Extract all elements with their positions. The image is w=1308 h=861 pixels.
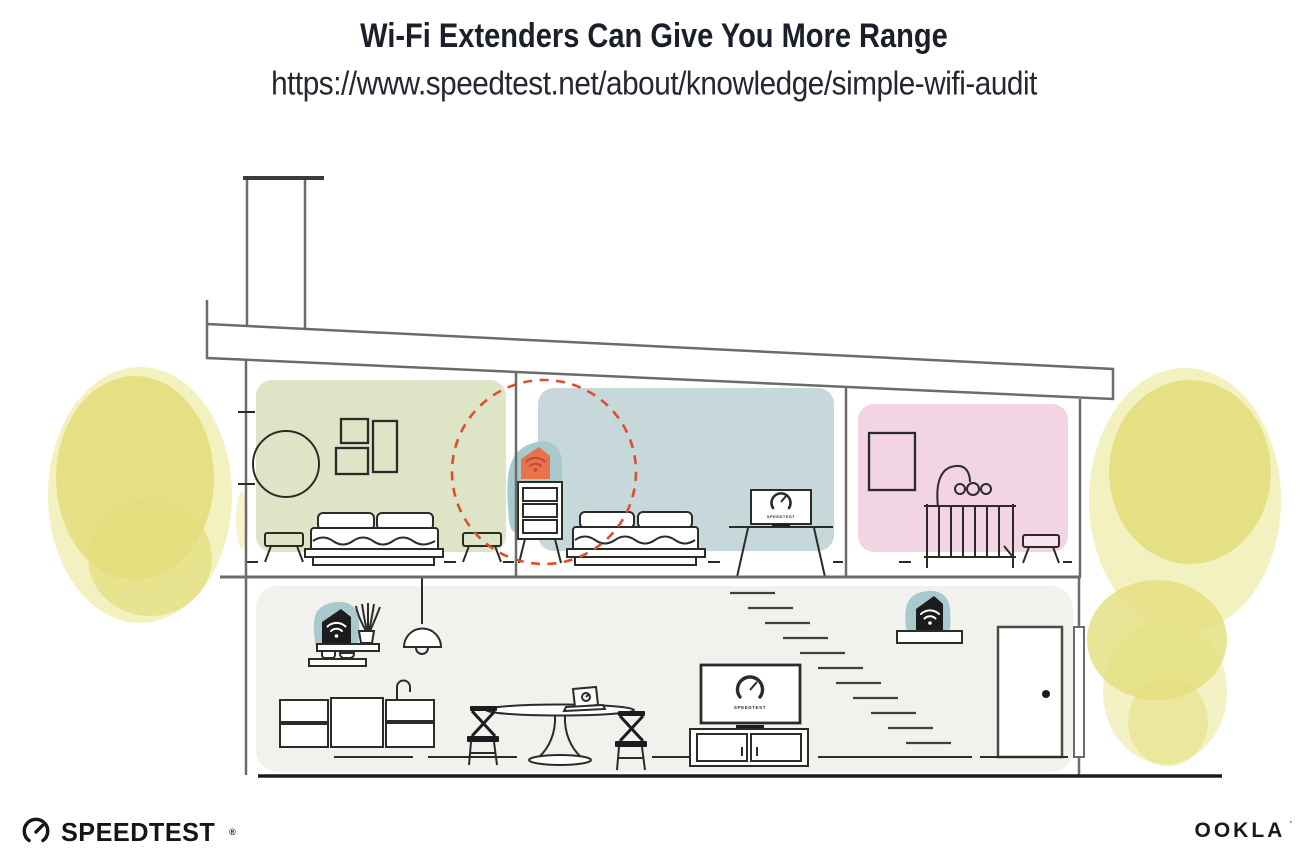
infographic-page: Wi-Fi Extenders Can Give You More Range … xyxy=(0,0,1308,861)
wall-shelf xyxy=(897,631,962,643)
tv-console xyxy=(690,729,808,766)
speedtest-gauge-icon xyxy=(20,816,52,848)
speedtest-logo: SPEEDTEST ® xyxy=(20,816,236,848)
tree-left xyxy=(48,367,248,623)
tv-living-room xyxy=(701,665,800,723)
bed xyxy=(305,513,443,565)
trademark-tick: ’ xyxy=(1290,820,1292,831)
dining-table xyxy=(486,705,634,716)
wall-shelf xyxy=(317,644,379,651)
tv-screen-label: SPEEDTEST xyxy=(734,705,766,710)
ookla-logo: OOKLA ’ xyxy=(1194,819,1292,843)
tv-screen-label: SPEEDTEST xyxy=(767,514,795,519)
speedtest-wordmark: SPEEDTEST xyxy=(61,817,215,848)
chimney xyxy=(243,178,324,330)
tree-right xyxy=(1087,368,1281,766)
registered-mark: ® xyxy=(229,817,236,847)
ookla-wordmark: OOKLA xyxy=(1194,819,1285,842)
door-knob xyxy=(1042,690,1050,698)
house-illustration: SPEEDTEST xyxy=(0,0,1308,861)
living-room: SPEEDTEST xyxy=(690,665,808,766)
